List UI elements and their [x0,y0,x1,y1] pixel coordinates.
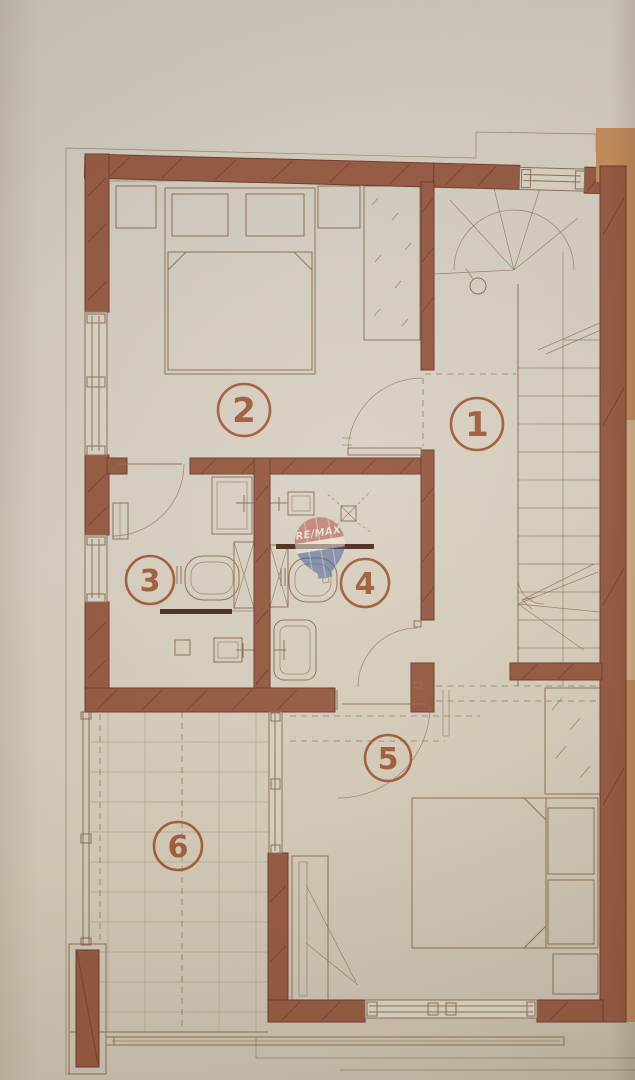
room-label-5: 5 [365,735,411,781]
window-icon [85,535,107,602]
glass-wall-icon [269,712,282,853]
svg-text:1: 1 [465,405,489,445]
stair-post-icon [466,269,486,294]
sink-icon [270,492,314,515]
party-wall [600,166,626,1022]
toilet-icon [177,556,239,600]
room-labels: 1 2 3 4 5 6 [126,384,503,870]
terrace-railing [81,712,91,945]
floor-plan-photo: 1 2 3 4 5 6 [0,0,635,1080]
shower-screen-icon [160,609,257,614]
drain-icon [175,640,190,655]
room-label-3: 3 [126,556,174,604]
dresser-icon [292,856,358,1002]
svg-text:5: 5 [378,742,399,777]
bed-icon [165,188,315,374]
bed-icon [412,798,598,948]
adjacent-unit-light [626,420,635,680]
window-icon [519,167,585,191]
nightstand-icon [116,186,360,228]
bedroom2-furniture [110,181,420,374]
washbasin-icon [214,638,254,662]
door-arc [342,378,423,455]
shower-tray-icon [274,620,316,680]
room-label-4: 4 [341,559,389,607]
room-label-1: 1 [451,398,503,450]
stairs [425,180,610,701]
room-label-2: 2 [218,384,270,436]
column [69,944,106,1074]
svg-text:2: 2 [232,391,256,431]
top-wall [84,154,607,194]
svg-text:6: 6 [168,830,189,865]
svg-text:3: 3 [140,564,161,599]
nightstand-icon [553,954,598,994]
svg-text:4: 4 [355,567,376,602]
walls [69,128,635,1074]
room-label-6: 6 [154,822,202,870]
wardrobe-icon [545,688,602,794]
bedroom5-furniture [290,688,602,1002]
sink-icon [212,477,254,534]
window-icon [85,312,107,455]
floor-plan-image: 1 2 3 4 5 6 [0,0,635,1080]
terrace-parapet [106,1037,635,1070]
terrace-grid [70,712,270,1032]
shaft-icon [234,542,254,608]
radiator-icon [113,503,128,539]
balloon-basket-icon [322,577,329,583]
window-icon [365,1000,537,1018]
wardrobe-icon [364,186,420,340]
bathroom3-fixtures [113,477,257,662]
door-arc [112,464,184,536]
